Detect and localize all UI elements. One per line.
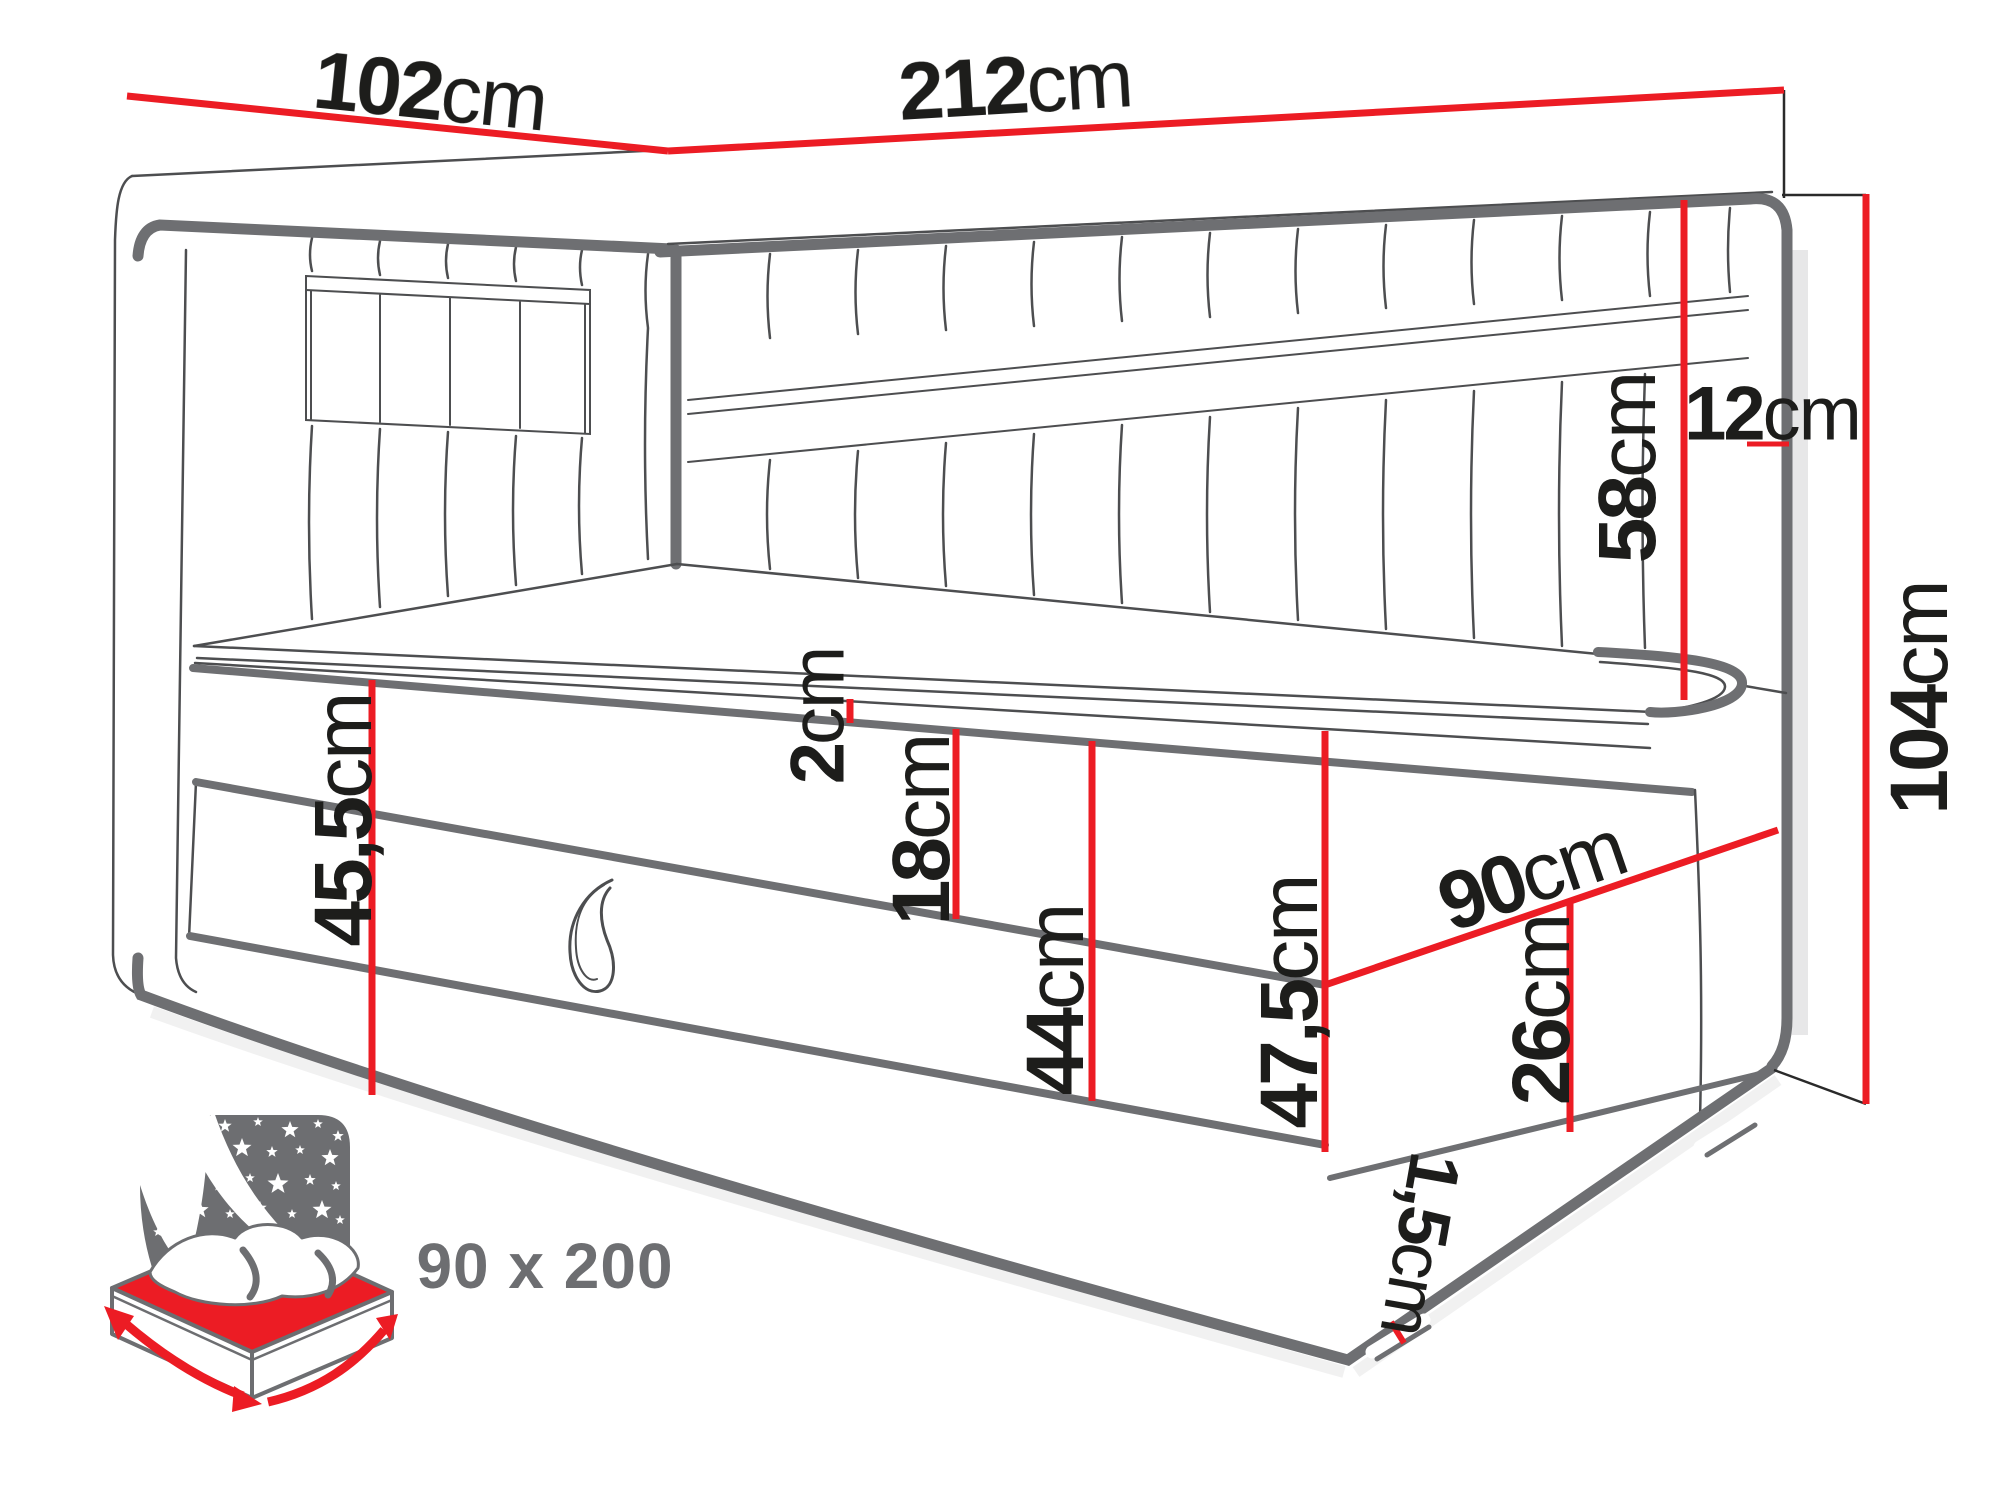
star-icon: [187, 1175, 197, 1184]
diagram-stage: 102cm 212cm 12cm 58cm 104cm 45,5cm 2cm 1…: [0, 0, 2000, 1500]
left-headboard-side-inner-edge: [176, 250, 196, 992]
label-18cm: 18cm: [875, 735, 969, 926]
left-headboard-back-top-edge: [132, 150, 664, 176]
right-headboard: [660, 192, 1787, 1066]
drawer-left-edge: [189, 782, 196, 938]
label-44cm: 44cm: [1009, 905, 1103, 1096]
shadow-strokes: [152, 250, 1800, 1372]
mattress: [193, 564, 1786, 792]
right-headboard-top-and-corner-edge: [660, 199, 1787, 1066]
label-45-5cm: 45,5cm: [297, 694, 391, 947]
label-58cm: 58cm: [1581, 373, 1675, 564]
left-headboard: [113, 150, 672, 995]
right-headboard-back-top-edge: [668, 192, 1772, 244]
star-icon: [177, 1144, 192, 1159]
mattress-back-edge: [677, 564, 1598, 654]
left-headboard-shelf-recess: [306, 276, 590, 434]
mattress-head-edge: [194, 564, 677, 646]
drawer-handle: [570, 880, 614, 992]
size-icon: [104, 1112, 398, 1412]
front-right-edge: [1695, 790, 1701, 1120]
sleeping-area-badge: 90 x 200: [416, 1229, 673, 1303]
label-102cm-value: 102: [309, 34, 445, 137]
label-212cm: 212cm: [896, 32, 1134, 140]
dim-line-212cm: [668, 90, 1784, 151]
label-26cm: 26cm: [1495, 915, 1589, 1106]
ext-104-bottom: [1774, 1070, 1866, 1104]
mattress-front-piping: [197, 658, 1648, 724]
label-12cm: 12cm: [1684, 371, 1860, 458]
label-47-5cm: 47,5cm: [1243, 876, 1337, 1129]
left-headboard-front-top-edge: [138, 225, 672, 256]
left-headboard-outer-edge: [113, 176, 141, 995]
label-2cm: 2cm: [775, 648, 862, 785]
drawer-bottom-seam: [190, 936, 1325, 1145]
label-104cm: 104cm: [1873, 581, 1967, 814]
mattress-rounded-end: [1598, 652, 1742, 713]
mattress-front-top-edge: [194, 646, 1652, 712]
